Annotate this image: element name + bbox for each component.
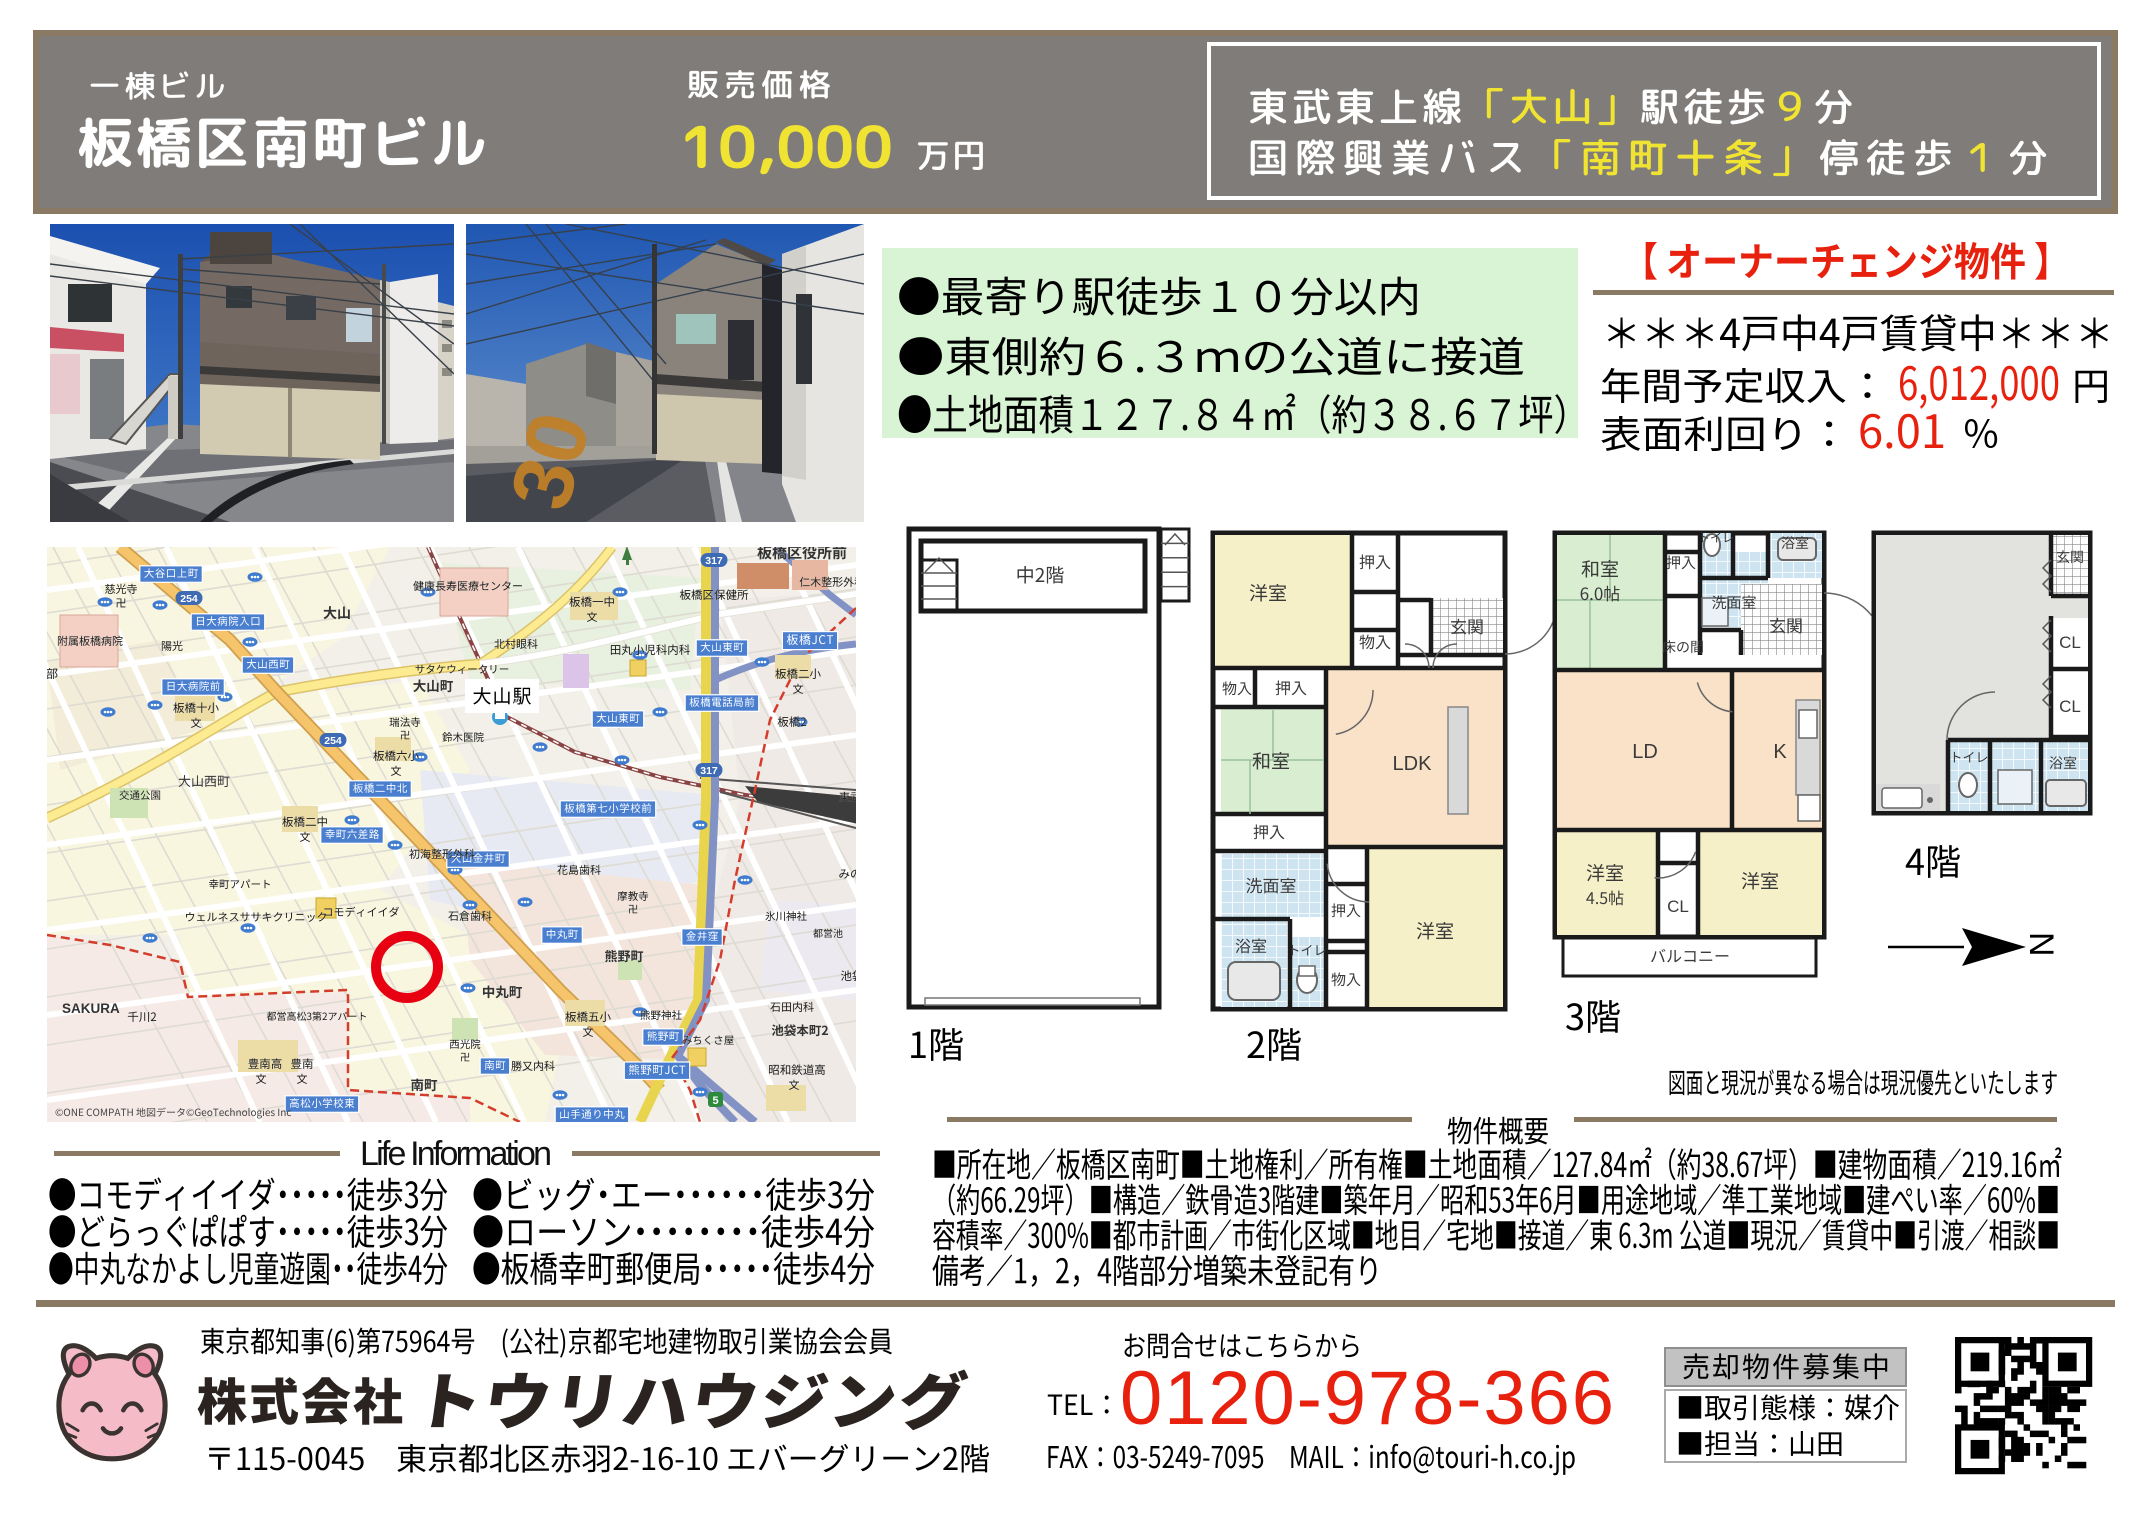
svg-text:K: K xyxy=(1773,741,1787,763)
svg-text:LDK: LDK xyxy=(1393,753,1433,775)
svg-text:254: 254 xyxy=(324,735,342,747)
svg-text:5: 5 xyxy=(712,1095,718,1107)
svg-text:0120-978-366: 0120-978-366 xyxy=(1120,1356,1614,1441)
svg-text:CL: CL xyxy=(2059,633,2081,652)
svg-text:LD: LD xyxy=(1632,741,1658,763)
svg-text:317: 317 xyxy=(705,555,723,567)
svg-text:CL: CL xyxy=(2059,697,2081,716)
svg-text:254: 254 xyxy=(180,593,198,605)
svg-text:317: 317 xyxy=(700,765,718,777)
svg-text:N: N xyxy=(2022,932,2060,957)
svg-text:SAKURA: SAKURA xyxy=(62,1001,120,1016)
svg-text:CL: CL xyxy=(1667,897,1689,916)
svg-text:Life Information: Life Information xyxy=(360,1135,552,1173)
